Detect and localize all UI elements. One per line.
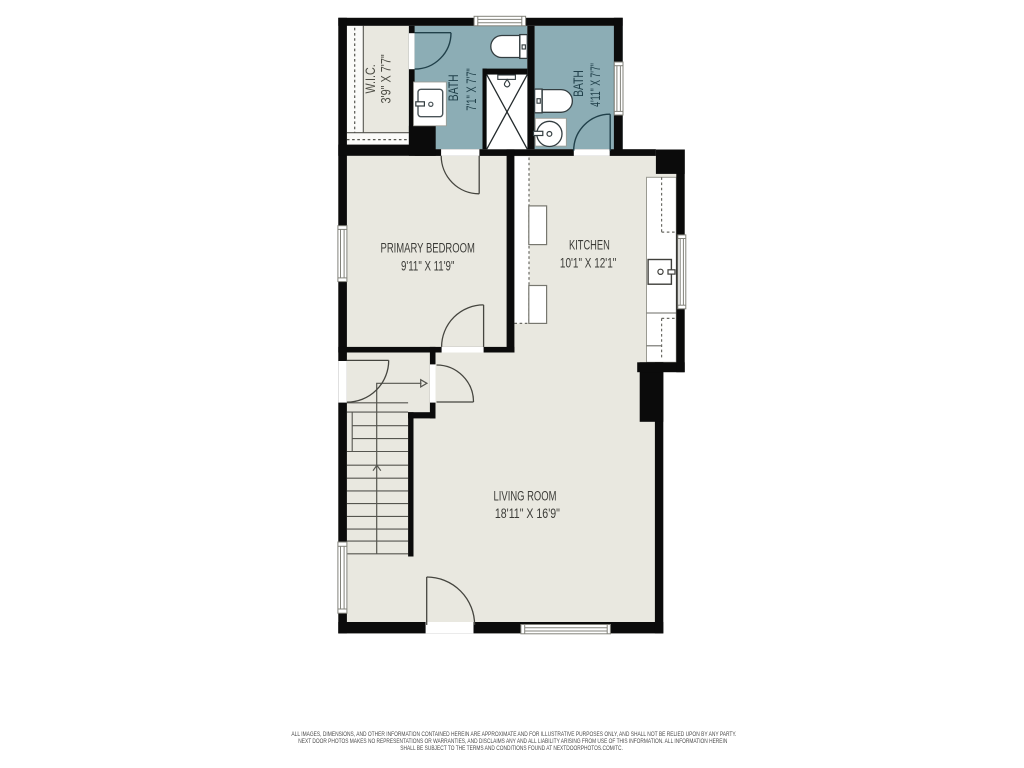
svg-text:KITCHEN: KITCHEN xyxy=(569,237,610,252)
svg-text:ALL IMAGES, DIMENSIONS, AND OT: ALL IMAGES, DIMENSIONS, AND OTHER INFORM… xyxy=(291,731,736,738)
svg-text:PRIMARY BEDROOM: PRIMARY BEDROOM xyxy=(381,240,475,255)
svg-text:BATH: BATH xyxy=(571,70,586,97)
svg-text:W.I.C.: W.I.C. xyxy=(363,64,378,93)
svg-text:NEXT DOOR PHOTOS MAKES NO REPR: NEXT DOOR PHOTOS MAKES NO REPRESENTATION… xyxy=(298,738,727,745)
svg-text:9'11" X 11'9": 9'11" X 11'9" xyxy=(401,258,455,273)
svg-text:SHALL BE SUBJECT TO THE TERMS: SHALL BE SUBJECT TO THE TERMS AND CONDIT… xyxy=(400,745,623,752)
svg-text:10'1" X 12'1": 10'1" X 12'1" xyxy=(560,256,617,271)
svg-text:LIVING ROOM: LIVING ROOM xyxy=(494,489,557,504)
svg-text:7'1" X 7'7": 7'1" X 7'7" xyxy=(464,68,479,111)
svg-text:3'9" X 7'7": 3'9" X 7'7" xyxy=(379,54,394,103)
svg-text:BATH: BATH xyxy=(446,74,461,101)
svg-text:4'11" X 7'7": 4'11" X 7'7" xyxy=(588,63,603,107)
svg-text:18'11" X 16'9": 18'11" X 16'9" xyxy=(495,506,560,521)
